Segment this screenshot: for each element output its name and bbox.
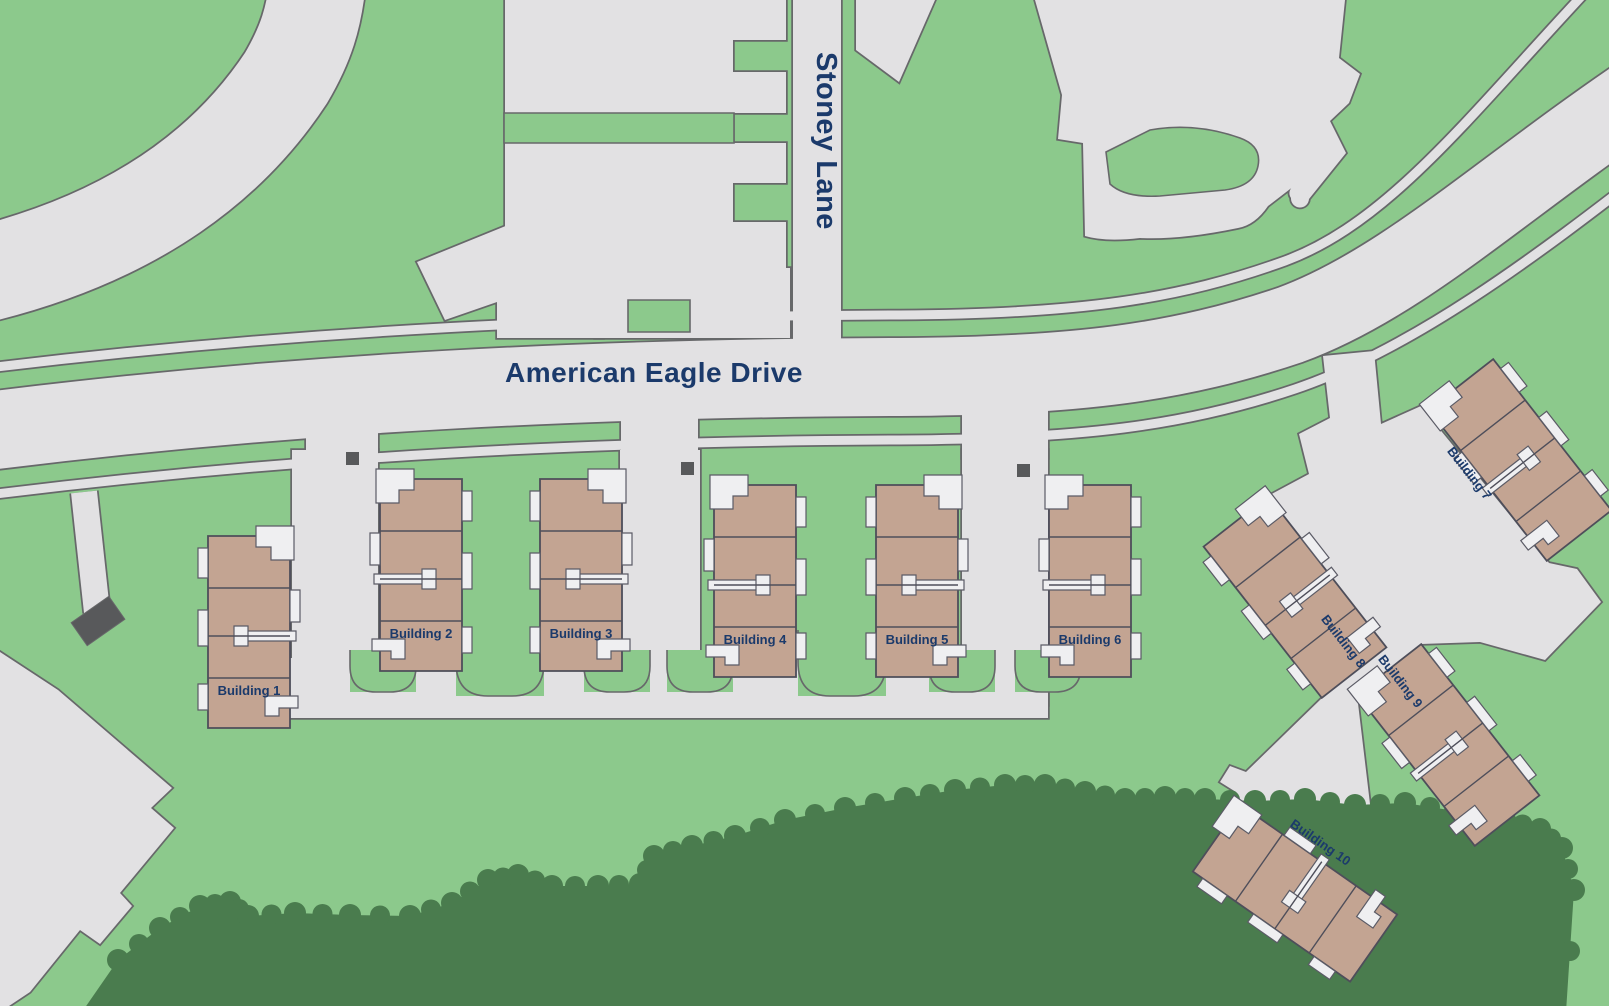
dumpster-pad: [1017, 464, 1030, 477]
site-map: Building 1Building 2Building 3Building 4…: [0, 0, 1609, 1006]
building-6-label: Building 6: [1059, 632, 1122, 647]
building-3-label: Building 3: [550, 626, 613, 641]
building-4[interactable]: Building 4: [704, 475, 806, 677]
building-3[interactable]: Building 3: [530, 469, 632, 671]
street-label-stoney-lane: Stoney Lane: [810, 52, 842, 230]
building-6[interactable]: Building 6: [1039, 475, 1141, 677]
building-1[interactable]: Building 1: [198, 526, 300, 728]
building-4-label: Building 4: [724, 632, 788, 647]
building-2-label: Building 2: [390, 626, 453, 641]
site-map-stage: Building 1Building 2Building 3Building 4…: [0, 0, 1609, 1006]
dumpster-pad: [681, 462, 694, 475]
building-5[interactable]: Building 5: [866, 475, 968, 677]
building-2[interactable]: Building 2: [370, 469, 472, 671]
building-5-label: Building 5: [886, 632, 949, 647]
street-label-american-eagle-drive: American Eagle Drive: [505, 357, 803, 388]
dumpster-pad: [346, 452, 359, 465]
building-1-label: Building 1: [218, 683, 281, 698]
